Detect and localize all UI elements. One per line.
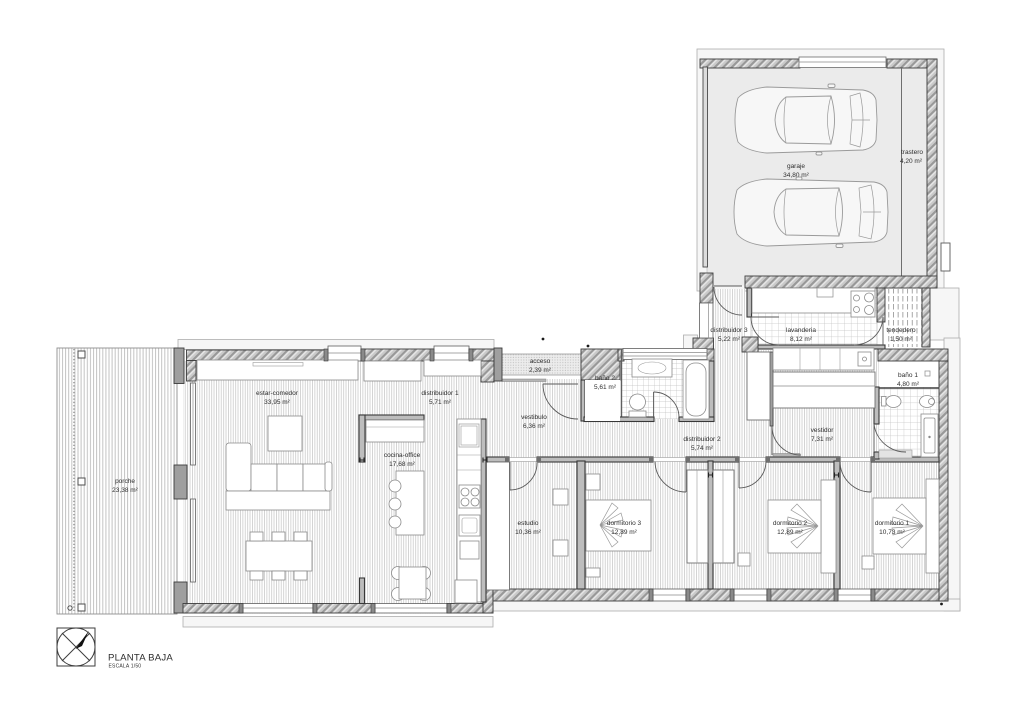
svg-text:lavanderia: lavanderia: [786, 327, 816, 334]
svg-text:dormitorio 1: dormitorio 1: [875, 520, 910, 527]
svg-text:33,95 m²: 33,95 m²: [264, 399, 290, 406]
svg-text:vestibulo: vestibulo: [521, 414, 547, 421]
svg-text:tendedero: tendedero: [886, 327, 916, 334]
svg-text:distribuidor 1: distribuidor 1: [421, 390, 459, 397]
svg-text:12,89 m²: 12,89 m²: [611, 529, 637, 536]
svg-text:baño 1: baño 1: [898, 372, 918, 379]
svg-text:distribuidor 2: distribuidor 2: [683, 436, 721, 443]
svg-text:porche: porche: [115, 478, 135, 485]
svg-text:acceso: acceso: [530, 358, 551, 365]
svg-text:dormitorio 2: dormitorio 2: [773, 520, 808, 527]
svg-text:6,36 m²: 6,36 m²: [523, 423, 546, 430]
svg-text:trastero: trastero: [901, 149, 923, 156]
svg-text:2,39 m²: 2,39 m²: [529, 367, 552, 374]
svg-text:ESCALA 1/50: ESCALA 1/50: [109, 664, 142, 670]
svg-text:5,74 m²: 5,74 m²: [691, 445, 714, 452]
svg-text:7,31 m²: 7,31 m²: [811, 436, 834, 443]
svg-text:12,89 m²: 12,89 m²: [777, 529, 803, 536]
svg-text:1,50 m²: 1,50 m²: [890, 336, 913, 343]
svg-text:17,68 m²: 17,68 m²: [389, 461, 415, 468]
svg-text:distribuidor 3: distribuidor 3: [710, 327, 748, 334]
svg-text:5,22 m²: 5,22 m²: [718, 336, 741, 343]
svg-text:baño 2: baño 2: [595, 375, 615, 382]
svg-text:cocina-office: cocina-office: [384, 452, 421, 459]
svg-text:5,71 m²: 5,71 m²: [429, 399, 452, 406]
svg-text:4,20 m²: 4,20 m²: [900, 158, 923, 165]
svg-text:10,73 m²: 10,73 m²: [879, 529, 905, 536]
svg-text:8,12 m²: 8,12 m²: [790, 336, 813, 343]
svg-text:4,80 m²: 4,80 m²: [897, 381, 920, 388]
svg-text:estudio: estudio: [518, 520, 539, 527]
svg-text:23,38 m²: 23,38 m²: [112, 487, 138, 494]
svg-text:garaje: garaje: [787, 163, 805, 170]
svg-text:PLANTA BAJA: PLANTA BAJA: [108, 653, 173, 664]
svg-text:10,36 m²: 10,36 m²: [515, 529, 541, 536]
svg-text:estar-comedor: estar-comedor: [256, 390, 299, 397]
svg-text:5,61 m²: 5,61 m²: [594, 384, 617, 391]
svg-text:vestidor: vestidor: [811, 427, 835, 434]
svg-text:dormitorio 3: dormitorio 3: [607, 520, 642, 527]
